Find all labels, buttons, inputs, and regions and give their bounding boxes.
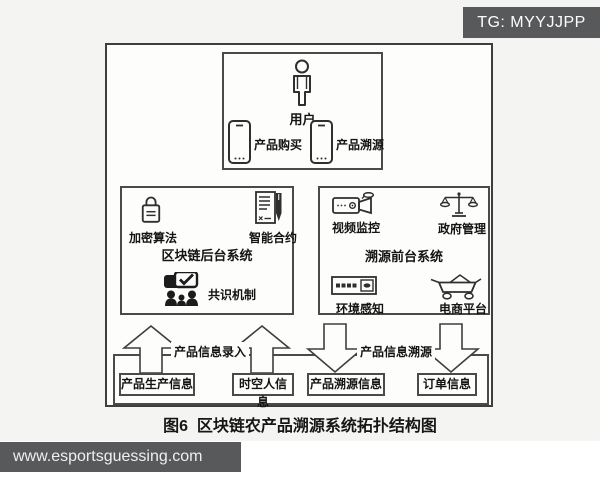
trace-smartphone-icon <box>310 120 333 164</box>
telegram-watermark-badge: TG: MYYJJPP <box>463 7 600 38</box>
padlock-icon <box>140 192 162 225</box>
video-camera-icon <box>332 192 376 216</box>
purchase-smartphone-icon <box>228 120 251 164</box>
up-arrow-production <box>124 326 178 373</box>
trace-label: 产品溯源 <box>336 136 384 153</box>
purchase-label: 产品购买 <box>254 136 302 153</box>
shopping-cart-icon <box>430 273 482 300</box>
environment-sensor-icon <box>331 276 377 295</box>
figure-caption: 图6 区块链农产品溯源系统拓扑结构图 <box>0 412 600 436</box>
ecommerce-label: 电商平台 <box>439 300 487 317</box>
backend-title: 区块链后台系统 <box>122 245 292 264</box>
order-info-box: 订单信息 <box>417 373 477 396</box>
topology-diagram-frame: 用户 产品购买 产品溯源 加密算 <box>105 43 493 407</box>
user-person-icon <box>284 59 320 107</box>
balance-scale-icon <box>440 192 478 218</box>
down-arrow-traceinfo <box>308 324 362 372</box>
consensus-people-icon <box>164 272 200 306</box>
production-info-box: 产品生产信息 <box>119 373 195 396</box>
trace-flow-label: 产品信息溯源 <box>357 342 435 361</box>
spacetime-info-box: 时空人信息 <box>232 373 294 396</box>
flow-arrows <box>107 317 495 377</box>
smart-contract-icon <box>255 191 285 224</box>
video-label: 视频监控 <box>332 219 380 236</box>
consensus-label: 共识机制 <box>208 286 256 303</box>
encryption-label: 加密算法 <box>129 229 177 246</box>
contract-label: 智能合约 <box>249 229 297 246</box>
entry-flow-label: 产品信息录入 <box>171 342 249 361</box>
trace-info-box: 产品溯源信息 <box>307 373 385 396</box>
frontend-title: 溯源前台系统 <box>320 246 488 265</box>
website-watermark-bar: www.esportsguessing.com <box>0 442 241 472</box>
trace-frontend-box: 视频监控 政府管理 溯源前台系统 <box>318 186 490 315</box>
environment-label: 环境感知 <box>336 300 384 317</box>
user-section-box: 用户 产品购买 产品溯源 <box>222 52 383 170</box>
blockchain-backend-box: 加密算法 智能合约 区块链后台系统 <box>120 186 294 315</box>
government-label: 政府管理 <box>438 220 486 237</box>
